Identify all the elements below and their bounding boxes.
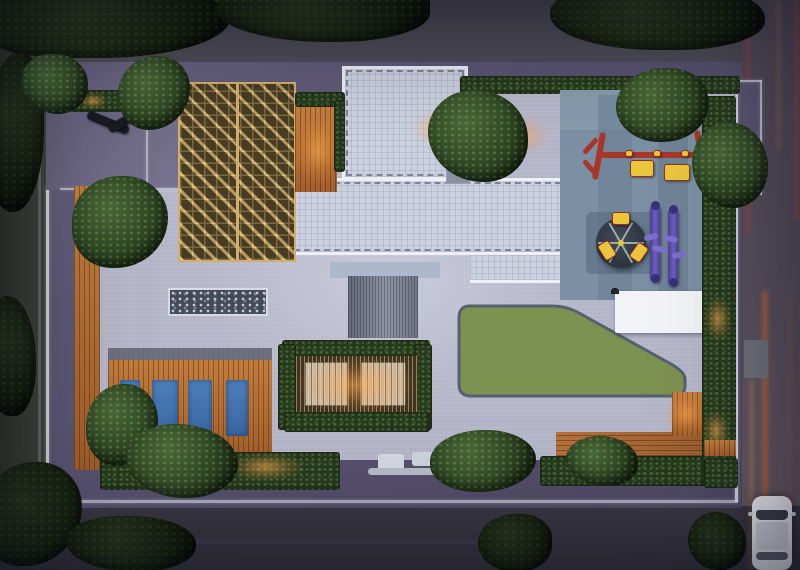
gym-knob (651, 274, 660, 283)
utility-box (744, 340, 768, 378)
gym-machine (650, 204, 660, 282)
aerial-site-plan-render (0, 0, 800, 570)
hedge-light-glow (704, 296, 732, 342)
carousel-seat (612, 212, 630, 225)
beam-cap (681, 150, 689, 157)
site-tree (692, 122, 768, 208)
car-rear-window (756, 552, 788, 560)
corner-deck (704, 440, 736, 456)
street-tree (688, 512, 746, 570)
gym-machine (668, 208, 678, 286)
pavilion-vines (284, 412, 430, 432)
swing-seat (664, 164, 690, 181)
gym-pedal (644, 233, 659, 242)
car-light-trail (777, 0, 780, 150)
site-tree (616, 68, 708, 142)
swing-seat (630, 160, 654, 177)
pergola-divider (236, 82, 239, 262)
car-mirror (748, 512, 753, 516)
blue-lounger-mat (226, 380, 248, 436)
corner-hedge (704, 458, 738, 488)
beam-cap (625, 150, 633, 157)
car-light-trail (240, 554, 620, 556)
deck-shadow-strip (108, 348, 272, 360)
beam-cap (653, 150, 661, 157)
white-car (752, 496, 792, 570)
tile-glyph (612, 289, 619, 294)
hedge-light-glow (226, 452, 306, 482)
gym-knob (669, 205, 678, 214)
boundary-edge-bottom (46, 500, 738, 503)
entrance-canopy-ribbed (348, 276, 418, 338)
gym-knob (651, 201, 660, 210)
game-tile-grid (615, 291, 707, 333)
pebble-water-feature (168, 288, 268, 316)
car-light-trail (795, 0, 799, 220)
pavilion-glow (296, 356, 418, 414)
car-windshield (756, 510, 788, 520)
street-tree (478, 514, 552, 570)
car-mirror (791, 512, 796, 516)
hedge-strip (334, 100, 345, 172)
boundary-edge-left (46, 186, 49, 504)
street-tree (66, 516, 196, 570)
car-roof (756, 522, 788, 550)
gym-knob (669, 278, 678, 287)
carousel-hub (618, 240, 624, 246)
